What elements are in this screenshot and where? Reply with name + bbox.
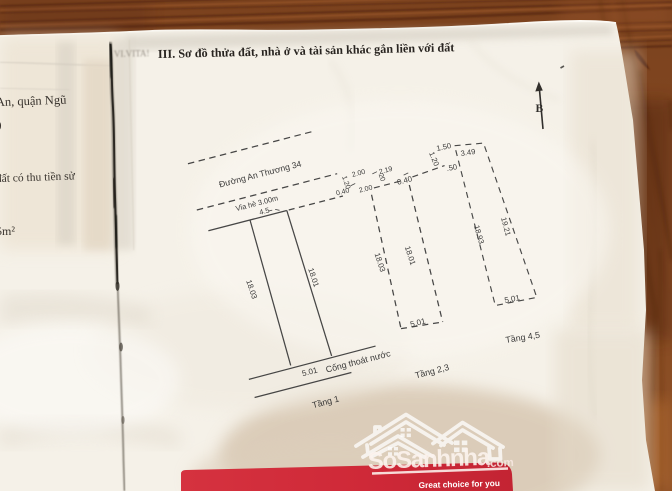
svg-text:VI.VITA!: VI.VITA! [114, 48, 150, 59]
svg-text:0: 0 [0, 118, 2, 133]
svg-text:5m²: 5m² [0, 224, 15, 238]
svg-text:An, quận Ngũ: An, quận Ngũ [0, 93, 67, 109]
svg-text:.50: .50 [446, 162, 458, 173]
svg-text:B: B [536, 103, 544, 115]
svg-text:Great choice for you: Great choice for you [418, 478, 500, 490]
